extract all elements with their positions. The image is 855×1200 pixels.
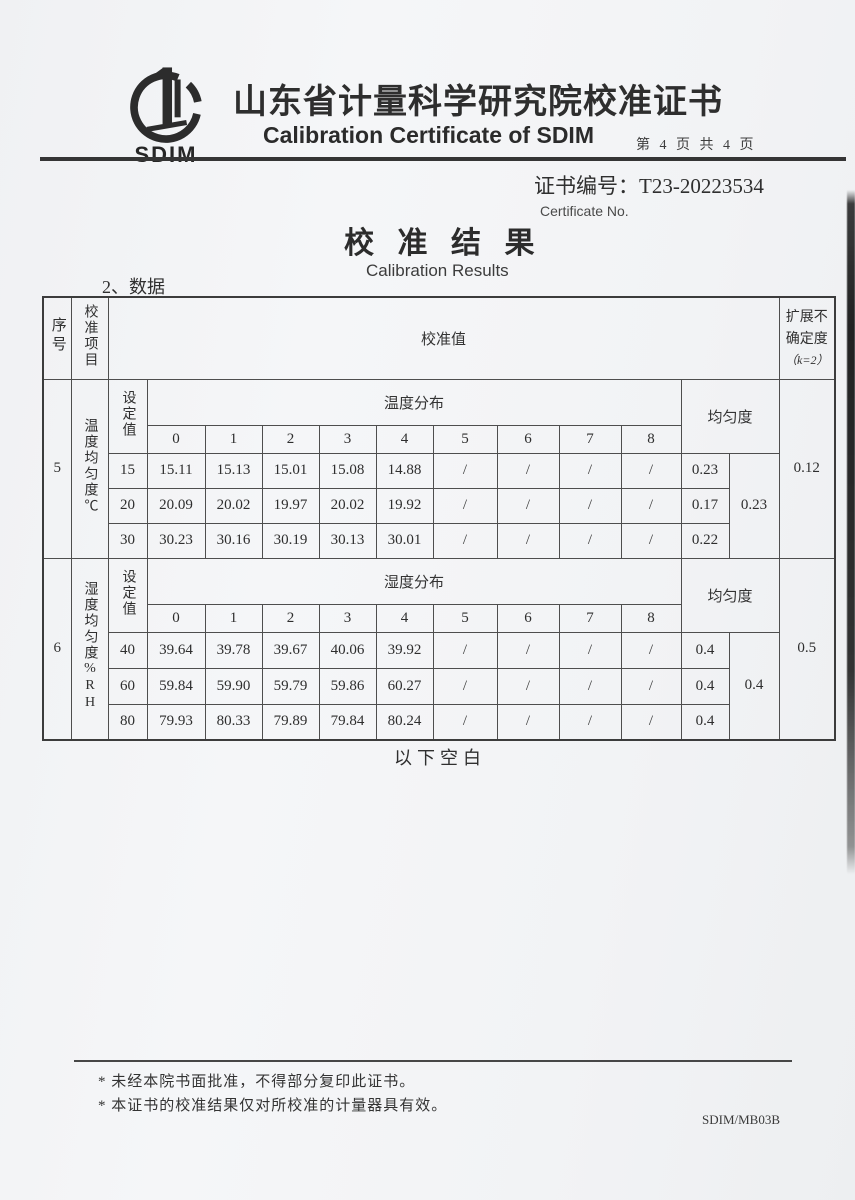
position-cell: 1: [205, 425, 262, 453]
position-cell: 5: [433, 604, 497, 632]
temp-dist-header-row: 5 温度均匀度℃ 设定值 温度分布 均匀度 0.12: [43, 379, 835, 425]
setpoint-cell: 20: [108, 488, 147, 523]
uniformity-cell: 0.22: [681, 523, 729, 558]
header-value: 校准值: [108, 297, 779, 379]
position-cell: 8: [621, 425, 681, 453]
results-table: 序号 校准项目 校准值 扩展不确定度（k=2） 5 温度均匀度℃ 设定值 温度分…: [42, 296, 836, 741]
uniformity-max-temp: 0.23: [729, 453, 779, 558]
value-cell: 40.06: [319, 632, 376, 668]
uncertainty-k: （k=2）: [783, 351, 831, 370]
certificate-number-caption: Certificate No.: [540, 203, 629, 219]
value-cell: /: [433, 632, 497, 668]
value-cell: 59.90: [205, 668, 262, 704]
value-cell: /: [559, 704, 621, 740]
humid-dist-header-row: 6 湿度均匀度%RH 设定值 湿度分布 均匀度 0.5: [43, 558, 835, 604]
setpoint-cell: 40: [108, 632, 147, 668]
form-code: SDIM/MB03B: [702, 1112, 780, 1128]
certificate-title-en: Calibration Certificate of SDIM: [263, 122, 594, 149]
value-cell: 59.86: [319, 668, 376, 704]
value-cell: 30.16: [205, 523, 262, 558]
certificate-number-value: T23-20223534: [639, 174, 764, 198]
value-cell: 19.92: [376, 488, 433, 523]
position-cell: 2: [262, 604, 319, 632]
certificate-number-line: 证书编号：T23-20223534: [534, 170, 764, 200]
uniformity-cell: 0.17: [681, 488, 729, 523]
position-cell: 6: [497, 425, 559, 453]
results-title-en: Calibration Results: [366, 261, 509, 281]
value-cell: 15.08: [319, 453, 376, 488]
setpoint-cell: 30: [108, 523, 147, 558]
uncertainty-humid: 0.5: [779, 558, 835, 740]
scan-edge-artifact: [847, 190, 855, 874]
value-cell: 80.24: [376, 704, 433, 740]
footer-divider: [74, 1060, 792, 1062]
uniformity-header-humid: 均匀度: [681, 558, 779, 632]
value-cell: /: [497, 704, 559, 740]
value-cell: 79.84: [319, 704, 376, 740]
humid-row-60: 60 59.84 59.90 59.79 59.86 60.27 / / / /…: [43, 668, 835, 704]
value-cell: 39.92: [376, 632, 433, 668]
setpoint-header-temp: 设定值: [108, 379, 147, 453]
position-cell: 5: [433, 425, 497, 453]
item-humidity: 湿度均匀度%RH: [71, 558, 108, 740]
value-cell: 39.78: [205, 632, 262, 668]
value-cell: /: [559, 453, 621, 488]
value-cell: 60.27: [376, 668, 433, 704]
value-cell: /: [497, 632, 559, 668]
value-cell: /: [621, 668, 681, 704]
table-header-row: 序号 校准项目 校准值 扩展不确定度（k=2）: [43, 297, 835, 379]
position-cell: 7: [559, 604, 621, 632]
serial-6: 6: [43, 558, 71, 740]
position-cell: 3: [319, 425, 376, 453]
value-cell: /: [559, 488, 621, 523]
value-cell: /: [497, 668, 559, 704]
header-serial: 序号: [43, 297, 71, 379]
value-cell: 20.02: [319, 488, 376, 523]
position-cell: 6: [497, 604, 559, 632]
value-cell: 15.01: [262, 453, 319, 488]
value-cell: /: [559, 523, 621, 558]
position-cell: 4: [376, 425, 433, 453]
value-cell: 20.02: [205, 488, 262, 523]
uncertainty-temp: 0.12: [779, 379, 835, 558]
value-cell: /: [621, 632, 681, 668]
value-cell: 30.01: [376, 523, 433, 558]
temp-dist-label: 温度分布: [147, 379, 681, 425]
value-cell: /: [497, 488, 559, 523]
certificate-title-cn: 山东省计量科学研究院校准证书: [233, 74, 723, 123]
logo-label: SDIM: [108, 142, 224, 168]
position-cell: 3: [319, 604, 376, 632]
value-cell: /: [497, 453, 559, 488]
value-cell: /: [621, 488, 681, 523]
position-cell: 4: [376, 604, 433, 632]
item-temperature: 温度均匀度℃: [71, 379, 108, 558]
value-cell: 15.11: [147, 453, 205, 488]
value-cell: 59.84: [147, 668, 205, 704]
value-cell: /: [621, 523, 681, 558]
temp-row-15: 15 15.11 15.13 15.01 15.08 14.88 / / / /…: [43, 453, 835, 488]
value-cell: 15.13: [205, 453, 262, 488]
setpoint-header-humid: 设定值: [108, 558, 147, 632]
temp-row-20: 20 20.09 20.02 19.97 20.02 19.92 / / / /…: [43, 488, 835, 523]
uniformity-cell: 0.4: [681, 704, 729, 740]
humid-row-80: 80 79.93 80.33 79.89 79.84 80.24 / / / /…: [43, 704, 835, 740]
setpoint-cell: 15: [108, 453, 147, 488]
serial-5: 5: [43, 379, 71, 558]
value-cell: /: [433, 523, 497, 558]
header-divider: [40, 157, 846, 161]
uniformity-header-temp: 均匀度: [681, 379, 779, 453]
results-title-cn: 校 准 结 果: [344, 218, 543, 262]
position-cell: 2: [262, 425, 319, 453]
footer-note-2: * 本证书的校准结果仅对所校准的计量器具有效。: [98, 1094, 447, 1115]
value-cell: 39.64: [147, 632, 205, 668]
humid-dist-label: 湿度分布: [147, 558, 681, 604]
sdim-logo: SDIM: [108, 64, 224, 168]
uniformity-cell: 0.4: [681, 632, 729, 668]
value-cell: 30.23: [147, 523, 205, 558]
setpoint-cell: 60: [108, 668, 147, 704]
header-uncertainty: 扩展不确定度（k=2）: [779, 297, 835, 379]
setpoint-cell: 80: [108, 704, 147, 740]
value-cell: /: [433, 488, 497, 523]
position-cell: 0: [147, 604, 205, 632]
temp-row-30: 30 30.23 30.16 30.19 30.13 30.01 / / / /…: [43, 523, 835, 558]
value-cell: /: [497, 523, 559, 558]
value-cell: 30.13: [319, 523, 376, 558]
uniformity-cell: 0.23: [681, 453, 729, 488]
position-cell: 1: [205, 604, 262, 632]
uncertainty-label: 扩展不确定度: [786, 310, 828, 347]
certificate-number-label: 证书编号：: [534, 174, 639, 198]
page-number: 第 4 页 共 4 页: [636, 134, 757, 154]
below-blank-note: 以下空白: [42, 744, 838, 770]
value-cell: 19.97: [262, 488, 319, 523]
value-cell: 30.19: [262, 523, 319, 558]
position-cell: 8: [621, 604, 681, 632]
footer-note-1: * 未经本院书面批准，不得部分复印此证书。: [98, 1070, 415, 1091]
certificate-page: SDIM 山东省计量科学研究院校准证书 Calibration Certific…: [0, 0, 855, 1200]
value-cell: 80.33: [205, 704, 262, 740]
value-cell: /: [559, 632, 621, 668]
results-table-wrap: 序号 校准项目 校准值 扩展不确定度（k=2） 5 温度均匀度℃ 设定值 温度分…: [42, 296, 836, 741]
value-cell: 14.88: [376, 453, 433, 488]
humid-row-40: 40 39.64 39.78 39.67 40.06 39.92 / / / /…: [43, 632, 835, 668]
position-cell: 7: [559, 425, 621, 453]
header-item: 校准项目: [71, 297, 108, 379]
value-cell: 20.09: [147, 488, 205, 523]
uniformity-cell: 0.4: [681, 668, 729, 704]
value-cell: /: [621, 704, 681, 740]
value-cell: 79.93: [147, 704, 205, 740]
position-cell: 0: [147, 425, 205, 453]
value-cell: /: [433, 704, 497, 740]
value-cell: /: [559, 668, 621, 704]
uniformity-max-humid: 0.4: [729, 632, 779, 740]
sdim-logo-icon: [123, 64, 209, 150]
value-cell: 39.67: [262, 632, 319, 668]
value-cell: 59.79: [262, 668, 319, 704]
value-cell: /: [433, 453, 497, 488]
value-cell: 79.89: [262, 704, 319, 740]
value-cell: /: [433, 668, 497, 704]
value-cell: /: [621, 453, 681, 488]
